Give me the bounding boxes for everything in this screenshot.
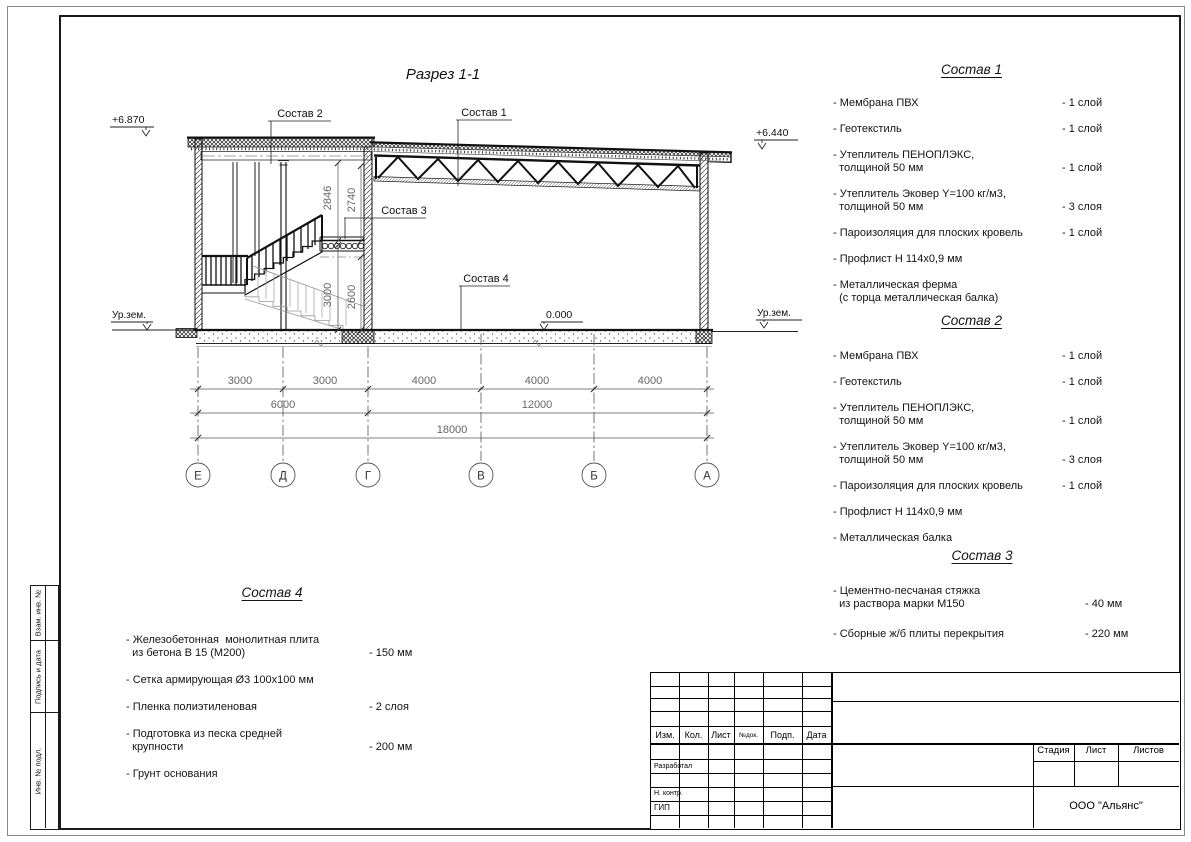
sostav3-list: Состав 3 - Цементно-песчаная стяжка из р… <box>833 548 1131 658</box>
staircase <box>202 215 363 332</box>
material-item: - Пленка полиэтиленовая- 2 слоя <box>126 701 418 714</box>
sostav4-title: Состав 4 <box>126 585 418 600</box>
material-name: - Грунт основания <box>126 768 218 781</box>
material-item: - Металлическая балка <box>833 532 1110 545</box>
material-item: - Сетка армирующая Ø3 100х100 мм <box>126 674 418 687</box>
vdim-2740: 2740 <box>346 188 358 212</box>
landing-balusters <box>206 256 241 285</box>
dim-4000-1: 4000 <box>412 375 436 387</box>
ground-level-right: Ур.зем. <box>756 308 802 328</box>
material-name: - Сборные ж/б плиты перекрытия <box>833 628 1004 641</box>
dim-3000-1: 3000 <box>228 375 252 387</box>
material-layers: - 2 слоя <box>369 701 418 714</box>
wall-axis-e <box>195 139 202 330</box>
material-name: - Подготовка из песка средней крупности <box>126 728 282 754</box>
material-item: - Утеплитель Эковер Y=100 кг/м3, толщино… <box>833 441 1110 467</box>
side-stamp-cell: Подпись и дата <box>31 641 58 713</box>
material-name: - Сетка армирующая Ø3 100х100 мм <box>126 674 314 687</box>
level-value: +6.870 <box>112 114 145 126</box>
tb-role-ncontrol: Н. контр. <box>654 789 714 799</box>
wall-axis-g <box>364 147 372 330</box>
tb-company: ООО "Альянс" <box>1033 801 1179 811</box>
material-item: - Профлист Н 114х0,9 мм <box>833 506 1110 519</box>
material-name: - Пленка полиэтиленовая <box>126 701 257 714</box>
tb-role-gip: ГИП <box>654 803 714 813</box>
material-layers: - 1 слой <box>1062 162 1110 175</box>
ground-level-left: Ур.зем. <box>111 310 153 330</box>
tb-col-list: Лист <box>708 730 734 740</box>
side-stamp-cell: Инв. № подл. <box>31 713 58 828</box>
title-block-line <box>651 698 831 699</box>
material-item: - Геотекстиль- 1 слой <box>833 376 1110 389</box>
lower-flight-stringer <box>245 299 350 332</box>
material-name: - Профлист Н 114х0,9 мм <box>833 506 962 519</box>
drawing-sheet: +6.870 +6.440 0.000 Ур.зем. Ур.зем. <box>0 0 1191 842</box>
level-mark-zero: 0.000 <box>540 309 583 330</box>
material-name: - Мембрана ПВХ <box>833 350 918 363</box>
material-item: - Геотекстиль- 1 слой <box>833 123 1110 136</box>
side-stamp: Взам. инв. № Подпись и дата Инв. № подл. <box>30 585 59 830</box>
title-block-line <box>651 815 831 816</box>
material-name: - Геотекстиль <box>833 123 902 136</box>
title-block-line <box>831 701 1179 702</box>
foundation-block-g <box>342 330 374 344</box>
material-name: - Утеплитель Эковер Y=100 кг/м3, толщино… <box>833 441 1006 467</box>
title-block-line <box>651 801 831 802</box>
material-item: - Металлическая ферма (с торца металличе… <box>833 279 1110 305</box>
upper-flight-rail <box>247 215 322 258</box>
tb-sheets: Листов <box>1118 746 1179 756</box>
material-name: - Утеплитель Эковер Y=100 кг/м3, толщино… <box>833 188 1006 214</box>
material-layers: - 1 слой <box>1062 123 1110 136</box>
title-block-line <box>651 726 831 727</box>
ground-label: Ур.зем. <box>757 308 791 319</box>
floor-slab <box>112 329 798 347</box>
sostav2-title: Состав 2 <box>833 313 1110 328</box>
tb-role-developer: Разработал <box>654 762 714 772</box>
leader-sostav-4: Состав 4 <box>459 273 510 331</box>
material-item: - Пароизоляция для плоских кровель- 1 сл… <box>833 227 1110 240</box>
tb-col-ndok: №док. <box>734 731 763 741</box>
sostav1-list: Состав 1 - Мембрана ПВХ- 1 слой - Геотек… <box>833 62 1110 318</box>
foundation-block-a <box>696 330 712 344</box>
stairwell-post-2 <box>255 162 259 256</box>
title-block-line <box>763 673 764 828</box>
side-stamp-label: Взам. инв. № <box>34 590 43 636</box>
material-layers: - 40 мм <box>1085 598 1131 611</box>
ground-label: Ур.зем. <box>112 310 146 321</box>
wall-axis-a <box>700 153 708 330</box>
tb-sheet: Лист <box>1074 746 1118 756</box>
material-layers: - 1 слой <box>1062 480 1110 493</box>
material-name: - Цементно-песчаная стяжка из раствора м… <box>833 585 980 611</box>
axis-lines <box>198 334 707 461</box>
material-item: - Цементно-песчаная стяжка из раствора м… <box>833 585 1131 611</box>
material-layers: - 1 слой <box>1062 227 1110 240</box>
material-name: - Пароизоляция для плоских кровель <box>833 480 1023 493</box>
tb-col-kol: Кол. <box>679 730 708 740</box>
dim-3000-2: 3000 <box>313 375 337 387</box>
title-block-line <box>651 686 831 687</box>
material-item: - Утеплитель ПЕНОПЛЭКС, толщиной 50 мм- … <box>833 149 1110 175</box>
title-block-line <box>1033 761 1179 762</box>
material-item: - Пароизоляция для плоских кровель- 1 сл… <box>833 480 1110 493</box>
material-layers: - 1 слой <box>1062 97 1110 110</box>
side-stamp-label-col: Подпись и дата <box>31 641 46 712</box>
sostav4-list: Состав 4 - Железобетонная монолитная пли… <box>126 585 418 795</box>
vdim-2600: 2600 <box>346 285 358 309</box>
material-name: - Металлическая ферма (с торца металличе… <box>833 279 998 305</box>
side-stamp-label: Подпись и дата <box>34 650 43 704</box>
svg-text:Д: Д <box>279 471 287 483</box>
material-layers: - 150 мм <box>369 647 418 660</box>
svg-text:В: В <box>477 471 485 483</box>
level-mark-6870: +6.870 <box>110 114 154 136</box>
material-item: - Сборные ж/б плиты перекрытия- 220 мм <box>833 628 1131 641</box>
material-name: - Пароизоляция для плоских кровель <box>833 227 1023 240</box>
material-layers: - 3 слоя <box>1062 454 1110 467</box>
dim-6000: 6000 <box>271 399 295 411</box>
svg-text:Б: Б <box>590 471 598 483</box>
upper-flight-steps <box>245 241 322 285</box>
steel-truss <box>374 156 700 192</box>
side-stamp-label: Инв. № подл. <box>34 747 43 794</box>
dim-12000: 12000 <box>522 399 553 411</box>
title-block-line <box>651 711 831 712</box>
material-name: - Металлическая балка <box>833 532 952 545</box>
title-block-line <box>802 673 803 828</box>
title-block-line <box>831 673 833 828</box>
section-title: Разрез 1-1 <box>373 66 513 83</box>
level-mark-6440: +6.440 <box>754 127 798 149</box>
dim-4000-3: 4000 <box>638 375 662 387</box>
material-item: - Грунт основания <box>126 768 418 781</box>
material-layers: - 3 слоя <box>1062 201 1110 214</box>
right-roof-soffit <box>708 162 731 163</box>
sostav1-title: Состав 1 <box>833 62 1110 77</box>
material-item: - Мембрана ПВХ- 1 слой <box>833 97 1110 110</box>
level-value: 0.000 <box>546 309 572 321</box>
material-name: - Геотекстиль <box>833 376 902 389</box>
floor-fill <box>196 331 712 343</box>
axis-bubbles <box>186 463 719 487</box>
title-block-line <box>831 786 1179 787</box>
svg-text:Состав 1: Состав 1 <box>461 107 507 119</box>
svg-text:А: А <box>703 471 711 483</box>
level-value: +6.440 <box>756 127 789 139</box>
material-item: - Утеплитель ПЕНОПЛЭКС, толщиной 50 мм- … <box>833 402 1110 428</box>
material-item: - Мембрана ПВХ- 1 слой <box>833 350 1110 363</box>
title-block-line <box>651 759 831 760</box>
right-building <box>370 142 732 330</box>
title-block-line <box>734 673 735 828</box>
side-stamp-label-col: Инв. № подл. <box>31 713 46 828</box>
title-block-line <box>651 773 831 774</box>
dim-4000-2: 4000 <box>525 375 549 387</box>
material-item: - Утеплитель Эковер Y=100 кг/м3, толщино… <box>833 188 1110 214</box>
tb-col-data: Дата <box>802 730 831 740</box>
material-layers: - 1 слой <box>1062 415 1110 428</box>
material-item: - Профлист Н 114х0,9 мм <box>833 253 1110 266</box>
material-layers: - 1 слой <box>1062 350 1110 363</box>
svg-text:Состав 2: Состав 2 <box>277 108 323 120</box>
svg-text:Г: Г <box>365 471 372 483</box>
sostav3-title: Состав 3 <box>833 548 1131 563</box>
material-layers: - 200 мм <box>369 741 418 754</box>
material-item: - Железобетонная монолитная плита из бет… <box>126 634 418 660</box>
axis-grid: 3000 3000 4000 4000 4000 6000 12000 1800… <box>186 334 719 487</box>
mezzanine-slab <box>320 237 364 257</box>
vdim-2846: 2846 <box>322 186 334 210</box>
tb-col-izm: Изм. <box>651 730 679 740</box>
material-name: - Профлист Н 114х0,9 мм <box>833 253 962 266</box>
material-name: - Утеплитель ПЕНОПЛЭКС, толщиной 50 мм <box>833 149 974 175</box>
title-block: Изм. Кол. Лист №док. Подп. Дата Разработ… <box>650 672 1181 830</box>
svg-text:Состав 4: Состав 4 <box>463 273 509 285</box>
svg-text:Состав 3: Состав 3 <box>381 205 427 217</box>
material-name: - Утеплитель ПЕНОПЛЭКС, толщиной 50 мм <box>833 402 974 428</box>
side-stamp-cell: Взам. инв. № <box>31 586 58 641</box>
material-layers: - 220 мм <box>1085 628 1131 641</box>
title-block-line <box>651 787 831 788</box>
sostav2-list: Состав 2 - Мембрана ПВХ- 1 слой - Геотек… <box>833 313 1110 558</box>
tb-stage: Стадия <box>1033 746 1074 756</box>
left-roof-layers <box>188 138 374 147</box>
dim-18000: 18000 <box>437 424 468 436</box>
vdim-3000: 3000 <box>322 283 334 307</box>
svg-text:Е: Е <box>194 471 202 483</box>
side-stamp-label-col: Взам. инв. № <box>31 586 46 640</box>
material-item: - Подготовка из песка средней крупности-… <box>126 728 418 754</box>
tb-col-podp: Подп. <box>763 730 802 740</box>
material-layers: - 1 слой <box>1062 376 1110 389</box>
material-name: - Железобетонная монолитная плита из бет… <box>126 634 319 660</box>
material-name: - Мембрана ПВХ <box>833 97 918 110</box>
